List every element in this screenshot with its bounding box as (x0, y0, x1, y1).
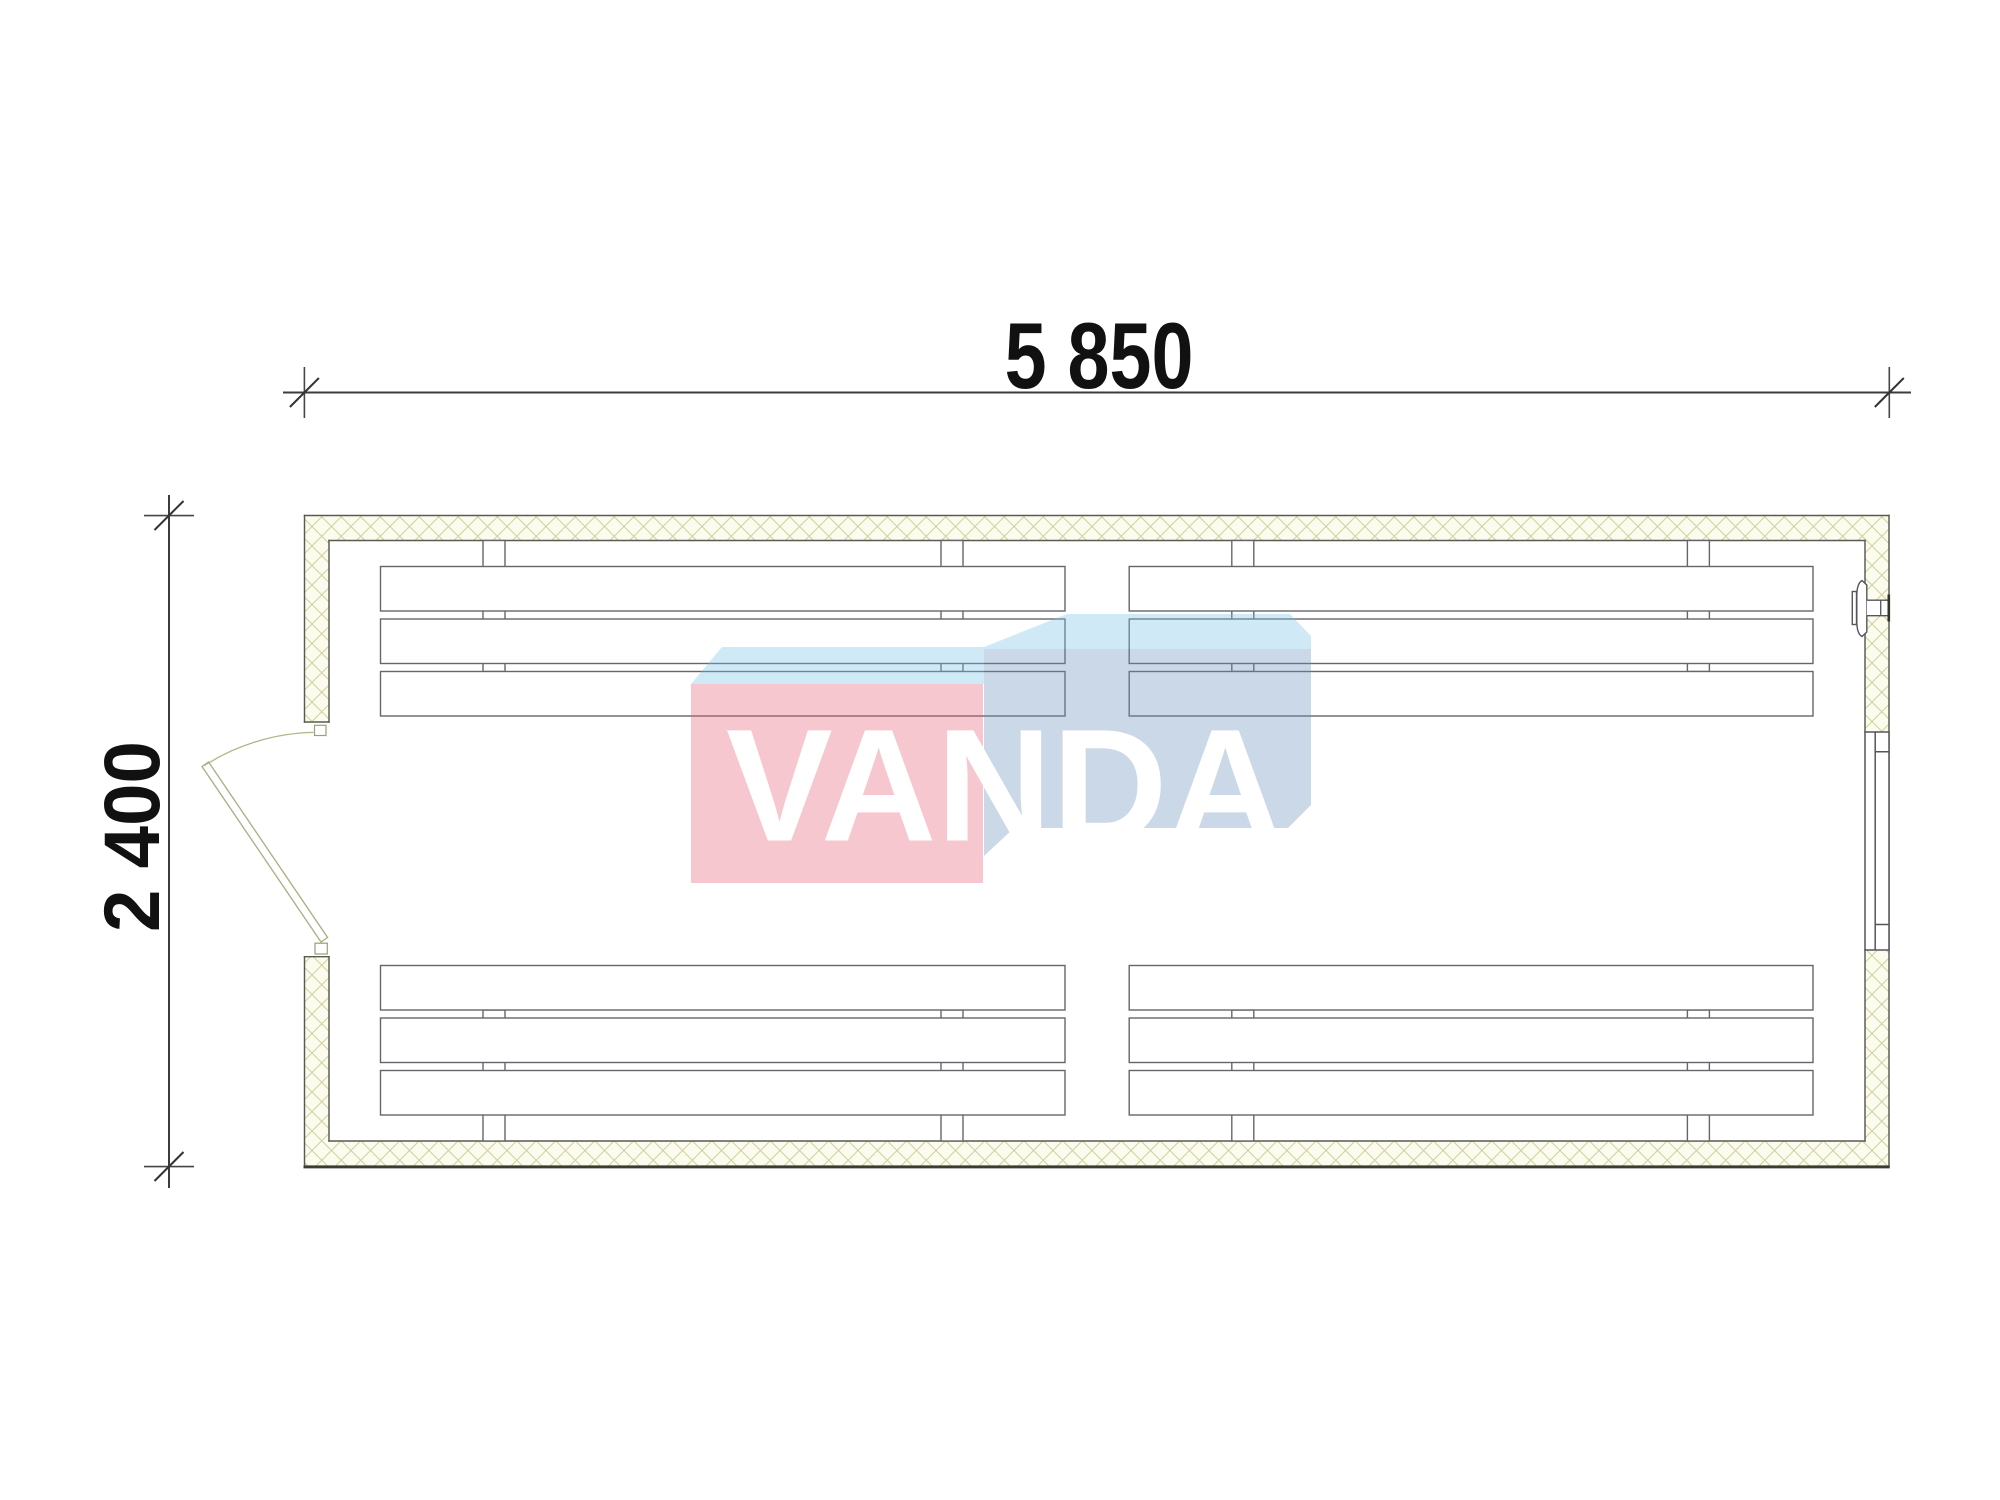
svg-text:2 400: 2 400 (89, 741, 176, 932)
svg-text:VANDA: VANDA (726, 696, 1283, 875)
svg-text:5 850: 5 850 (1005, 304, 1194, 409)
